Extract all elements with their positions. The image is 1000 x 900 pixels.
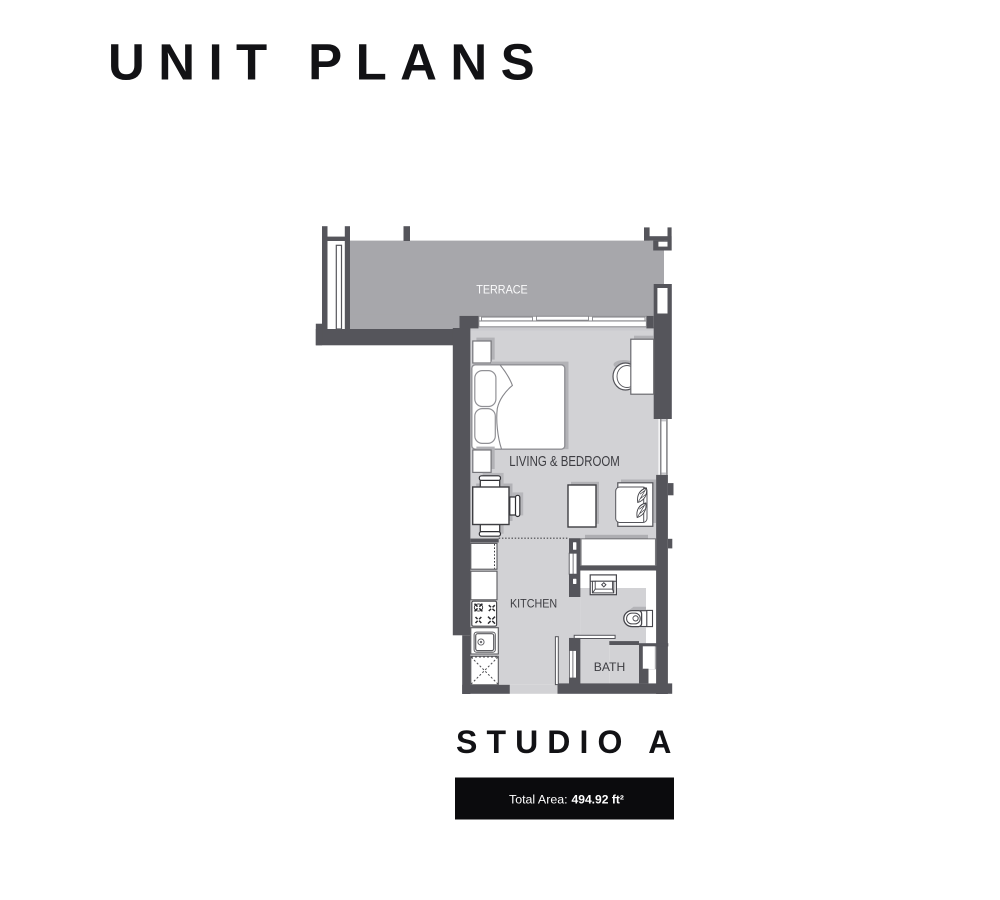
svg-text:TERRACE: TERRACE	[476, 283, 528, 297]
svg-text:494.92 ft²: 494.92 ft²	[572, 792, 624, 806]
svg-text:Total Area:: Total Area:	[509, 792, 568, 806]
svg-text:STUDIO A: STUDIO A	[456, 724, 681, 760]
svg-text:LIVING & BEDROOM: LIVING & BEDROOM	[509, 454, 620, 470]
svg-text:BATH: BATH	[594, 661, 626, 674]
svg-text:UNIT PLANS: UNIT PLANS	[108, 34, 548, 91]
svg-text:KITCHEN: KITCHEN	[510, 598, 557, 611]
